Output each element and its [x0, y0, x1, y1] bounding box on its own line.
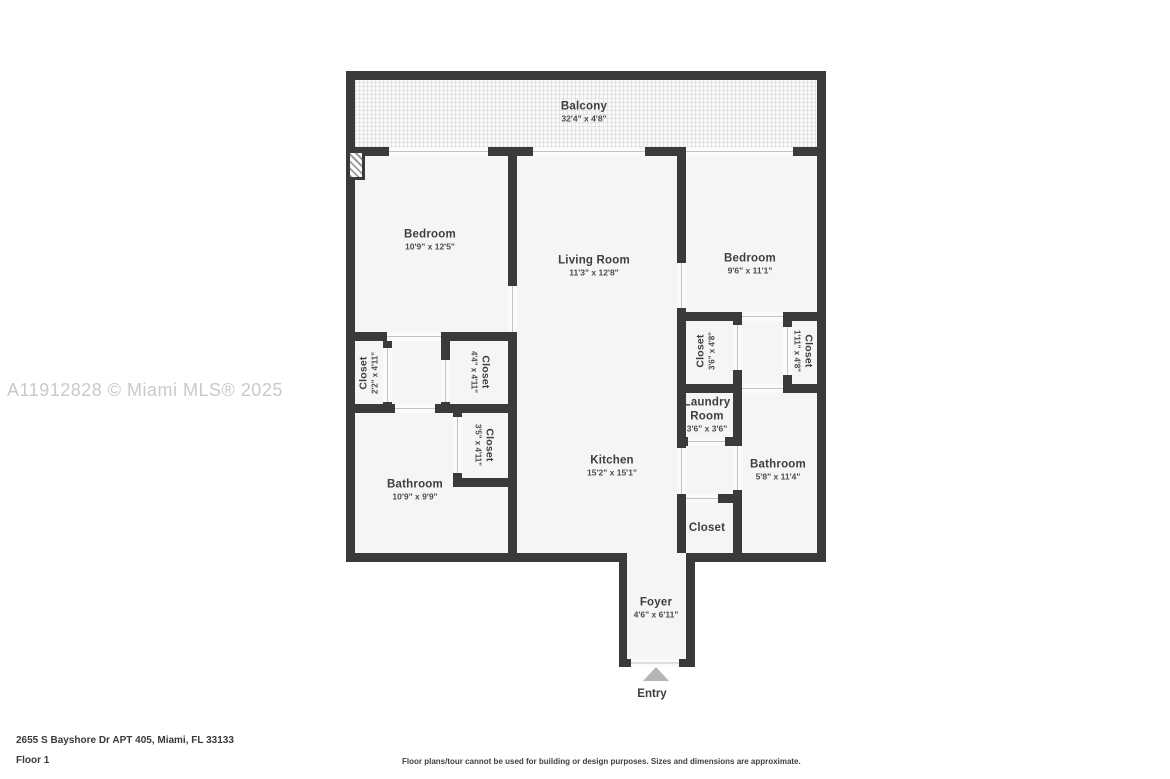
wall [783, 312, 792, 327]
room-dims: 10'9" x 12'5" [404, 242, 456, 253]
wall [441, 332, 450, 360]
door-opening [688, 437, 725, 446]
room-name: Bathroom [750, 458, 806, 472]
entry-arrow-icon [643, 667, 669, 681]
door-opening [383, 348, 392, 402]
room-label-closet-bed2-right: Closet 1'11" x 4'8" [792, 330, 815, 372]
room-dims: 9'6" x 11'1" [724, 266, 776, 277]
room-dims: 15'2" x 15'1" [587, 468, 637, 479]
room-label-bedroom-right: Bedroom 9'6" x 11'1" [724, 252, 776, 277]
room-dims: 3'6" x 3'6" [674, 424, 740, 435]
wall [453, 473, 462, 487]
room-dims: 5'8" x 11'4" [750, 472, 806, 483]
wall [453, 404, 462, 417]
door-opening [677, 448, 686, 494]
wall [508, 147, 517, 286]
room-dims: 11'3" x 12'8" [558, 268, 630, 279]
wall [508, 332, 517, 553]
wall [686, 553, 695, 667]
room-label-balcony: Balcony 32'4" x 4'8" [561, 100, 607, 125]
door-opening [453, 417, 462, 473]
room-name: Kitchen [587, 454, 637, 468]
wall [783, 375, 792, 393]
room-label-closet-bed1-right: Closet 4'4" x 4'11" [469, 351, 492, 393]
wall [346, 71, 826, 80]
room-name: Bathroom [387, 478, 443, 492]
property-address: 2655 S Bayshore Dr APT 405, Miami, FL 33… [16, 735, 234, 746]
column-hatched [347, 150, 365, 180]
wall [346, 71, 355, 562]
room-dims: 3'5" x 4'11" [473, 424, 484, 466]
door-opening [742, 384, 783, 393]
room-label-closet-bed1-left: Closet 2'2" x 4'11" [358, 352, 381, 394]
room-label-kitchen: Kitchen 15'2" x 15'1" [587, 454, 637, 479]
room-dims: 4'6" x 6'11" [634, 610, 679, 621]
mls-watermark: A11912828 © Miami MLS® 2025 [7, 380, 283, 401]
wall [383, 402, 392, 413]
room-label-foyer: Foyer 4'6" x 6'11" [634, 596, 679, 621]
door-opening [508, 286, 517, 332]
door-opening [395, 404, 435, 413]
room-dims: 32'4" x 4'8" [561, 114, 607, 125]
window [533, 147, 645, 156]
room-name: Closet [695, 332, 707, 370]
room-label-living-room: Living Room 11'3" x 12'8" [558, 254, 630, 279]
wall [441, 332, 517, 341]
wall [677, 494, 686, 553]
door-opening [677, 263, 686, 308]
door-opening [733, 445, 742, 490]
door-opening [441, 360, 450, 402]
room-label-bathroom-right: Bathroom 5'8" x 11'4" [750, 458, 806, 483]
door-opening [735, 312, 783, 321]
room-name: Bedroom [724, 252, 776, 266]
door-opening [685, 494, 718, 503]
room-name: Laundry Room [674, 396, 740, 424]
door-opening [387, 332, 441, 341]
room-name: Closet [689, 521, 725, 535]
room-label-laundry: Laundry Room 3'6" x 3'6" [674, 396, 740, 435]
room-label-closet-bed2-left: Closet 3'6" x 4'8" [695, 332, 718, 370]
wall [619, 553, 627, 667]
disclaimer-text: Floor plans/tour cannot be used for buil… [402, 757, 801, 766]
floor-number-label: Floor 1 [16, 755, 49, 766]
room-name: Closet [480, 351, 492, 393]
door-opening [631, 659, 679, 667]
wall [686, 553, 826, 562]
window [389, 147, 488, 156]
room-label-bathroom-left: Bathroom 10'9" x 9'9" [387, 478, 443, 503]
entry-label: Entry [637, 688, 666, 700]
floor-plan: Balcony 32'4" x 4'8" Bedroom 10'9" x 12'… [0, 0, 1170, 779]
room-name: Closet [358, 352, 370, 394]
room-dims: 4'4" x 4'11" [469, 351, 480, 393]
room-name: Closet [484, 424, 496, 466]
room-name: Bedroom [404, 228, 456, 242]
wall [346, 553, 627, 562]
room-label-bedroom-left: Bedroom 10'9" x 12'5" [404, 228, 456, 253]
room-dims: 3'6" x 4'8" [707, 332, 718, 370]
wall [733, 490, 742, 553]
wall [677, 147, 686, 263]
wall [817, 71, 826, 562]
room-dims: 2'2" x 4'11" [370, 352, 381, 394]
room-name: Living Room [558, 254, 630, 268]
window [686, 147, 793, 156]
door-opening [733, 325, 742, 370]
room-label-closet-hall: Closet [689, 521, 725, 535]
wall [441, 402, 450, 413]
room-name: Foyer [634, 596, 679, 610]
wall [733, 312, 742, 325]
room-dims: 10'9" x 9'9" [387, 492, 443, 503]
room-name: Balcony [561, 100, 607, 114]
wall [383, 341, 392, 348]
room-label-closet-bath1: Closet 3'5" x 4'11" [473, 424, 496, 466]
room-dims: 1'11" x 4'8" [792, 330, 803, 372]
room-name: Closet [803, 330, 815, 372]
